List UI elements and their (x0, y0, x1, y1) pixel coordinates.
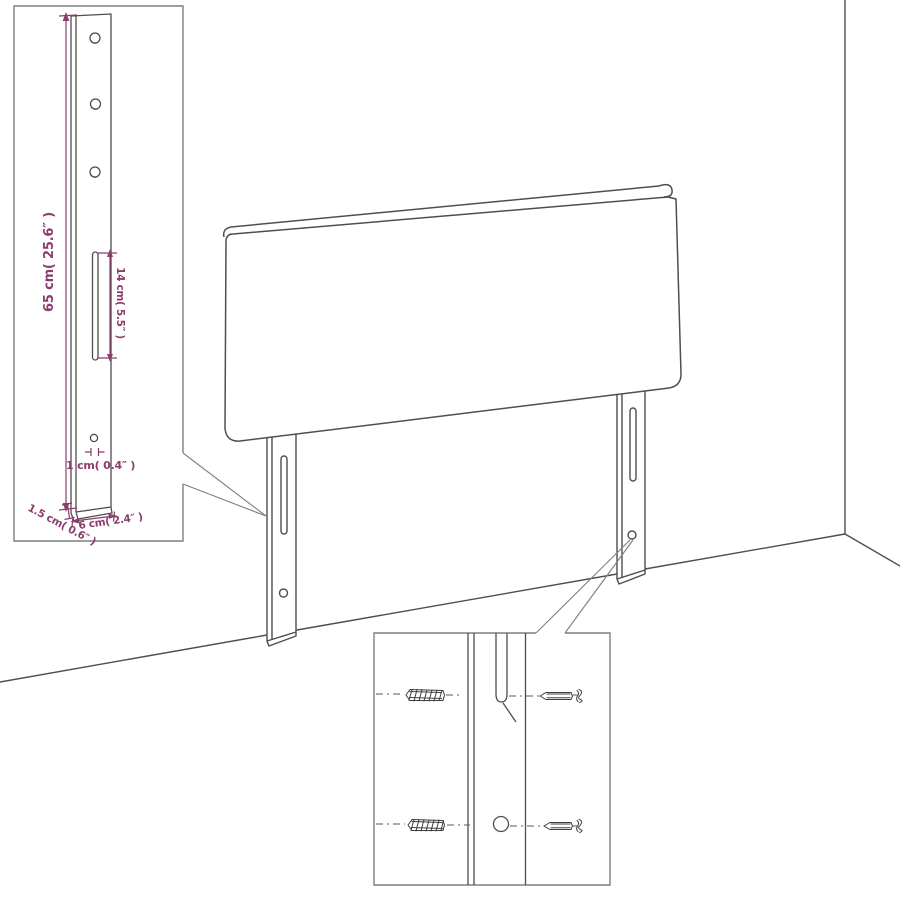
right-leg-slot (630, 408, 636, 481)
left-leg-hole (280, 589, 288, 597)
left-leg (267, 418, 296, 646)
diagram-canvas: 65 cm( 25.6″ ) 14 cm( 5.5″ ) 1 cm( 0.4″ … (0, 0, 900, 900)
floor-edge-right (845, 534, 900, 566)
callout-cones (183, 453, 633, 633)
headboard-dimension-diagram: 65 cm( 25.6″ ) 14 cm( 5.5″ ) 1 cm( 0.4″ … (0, 0, 900, 900)
post-slot (93, 252, 99, 360)
left-leg-slot (281, 456, 287, 534)
headboard (224, 185, 681, 441)
dim-height-label: 65 cm( 25.6″ ) (42, 212, 57, 312)
hardware-leg-hole (494, 817, 509, 832)
leg-detail-cone (183, 453, 266, 516)
headboard-front-face (225, 197, 681, 441)
right-leg (617, 378, 645, 584)
leg-detail-inset: 65 cm( 25.6″ ) 14 cm( 5.5″ ) 1 cm( 0.4″ … (14, 6, 183, 548)
post-small-hole (90, 434, 97, 441)
dim-slot-label: 14 cm( 5.5″ ) (114, 267, 126, 339)
right-leg-hole (628, 531, 636, 539)
dim-hole-label: 1 cm( 0.4″ ) (66, 459, 135, 472)
hardware-inset-fill (374, 633, 610, 885)
hardware-detail-inset (374, 633, 610, 885)
